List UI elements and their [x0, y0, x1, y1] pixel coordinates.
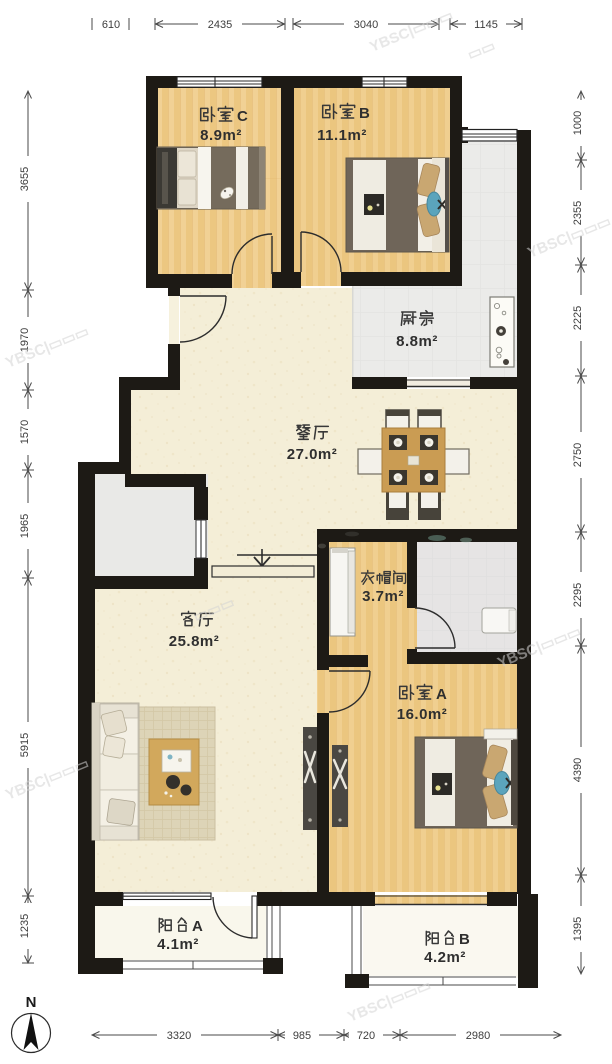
- svg-text:1145: 1145: [474, 19, 498, 31]
- svg-text:4.1m²: 4.1m²: [157, 936, 199, 953]
- svg-text:3320: 3320: [167, 1030, 191, 1042]
- svg-text:25.8m²: 25.8m²: [169, 633, 220, 650]
- svg-text:2295: 2295: [572, 583, 584, 607]
- svg-text:610: 610: [102, 19, 120, 31]
- svg-text:27.0m²: 27.0m²: [287, 446, 338, 463]
- svg-text:4.2m²: 4.2m²: [424, 949, 466, 966]
- svg-text:1395: 1395: [572, 917, 584, 941]
- svg-text:3655: 3655: [19, 167, 31, 191]
- svg-text:2355: 2355: [572, 201, 584, 225]
- svg-text:3.7m²: 3.7m²: [362, 588, 404, 605]
- svg-text:B: B: [459, 931, 470, 948]
- svg-text:3040: 3040: [354, 19, 378, 31]
- svg-text:2435: 2435: [208, 19, 232, 31]
- svg-text:1235: 1235: [19, 914, 31, 938]
- svg-text:11.1m²: 11.1m²: [317, 127, 367, 144]
- svg-text:1965: 1965: [19, 514, 31, 538]
- svg-text:A: A: [436, 686, 447, 703]
- svg-text:C: C: [237, 108, 248, 125]
- svg-text:985: 985: [293, 1030, 311, 1042]
- svg-text:5915: 5915: [19, 733, 31, 757]
- svg-text:720: 720: [357, 1030, 375, 1042]
- svg-text:2225: 2225: [572, 306, 584, 330]
- svg-text:B: B: [359, 105, 370, 122]
- svg-text:8.8m²: 8.8m²: [396, 333, 438, 350]
- svg-text:A: A: [192, 918, 203, 935]
- svg-text:16.0m²: 16.0m²: [397, 706, 448, 723]
- svg-text:1570: 1570: [19, 420, 31, 444]
- svg-text:2980: 2980: [466, 1030, 490, 1042]
- svg-text:1000: 1000: [572, 111, 584, 135]
- svg-text:N: N: [26, 994, 37, 1011]
- svg-text:2750: 2750: [572, 443, 584, 467]
- svg-text:4390: 4390: [572, 758, 584, 782]
- svg-text:8.9m²: 8.9m²: [200, 127, 242, 144]
